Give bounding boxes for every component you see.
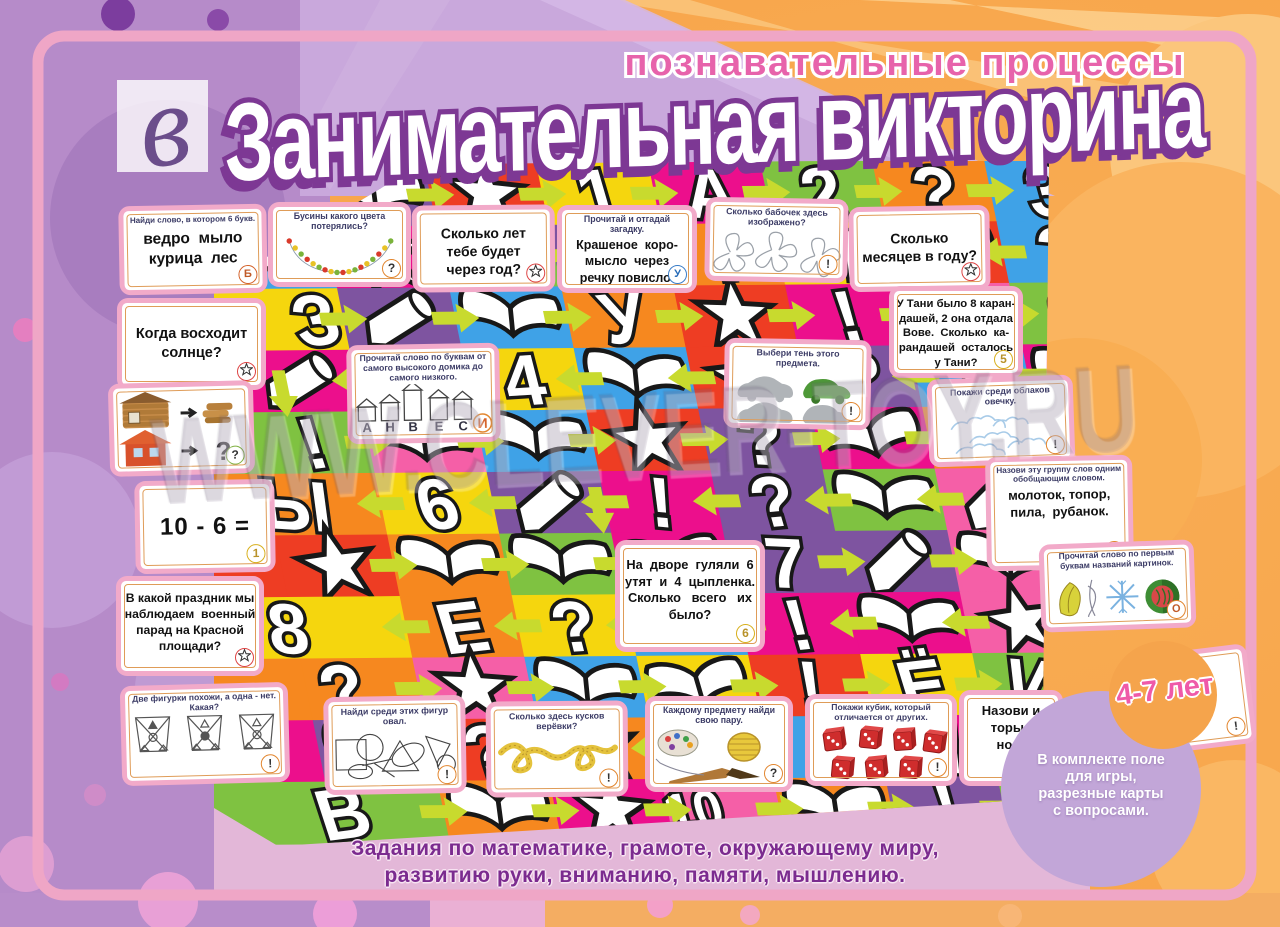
- svg-text:?: ?: [1258, 764, 1280, 848]
- svg-text:?: ?: [1189, 457, 1254, 540]
- svg-text:?: ?: [1183, 395, 1234, 479]
- svg-text:?: ?: [1164, 334, 1229, 417]
